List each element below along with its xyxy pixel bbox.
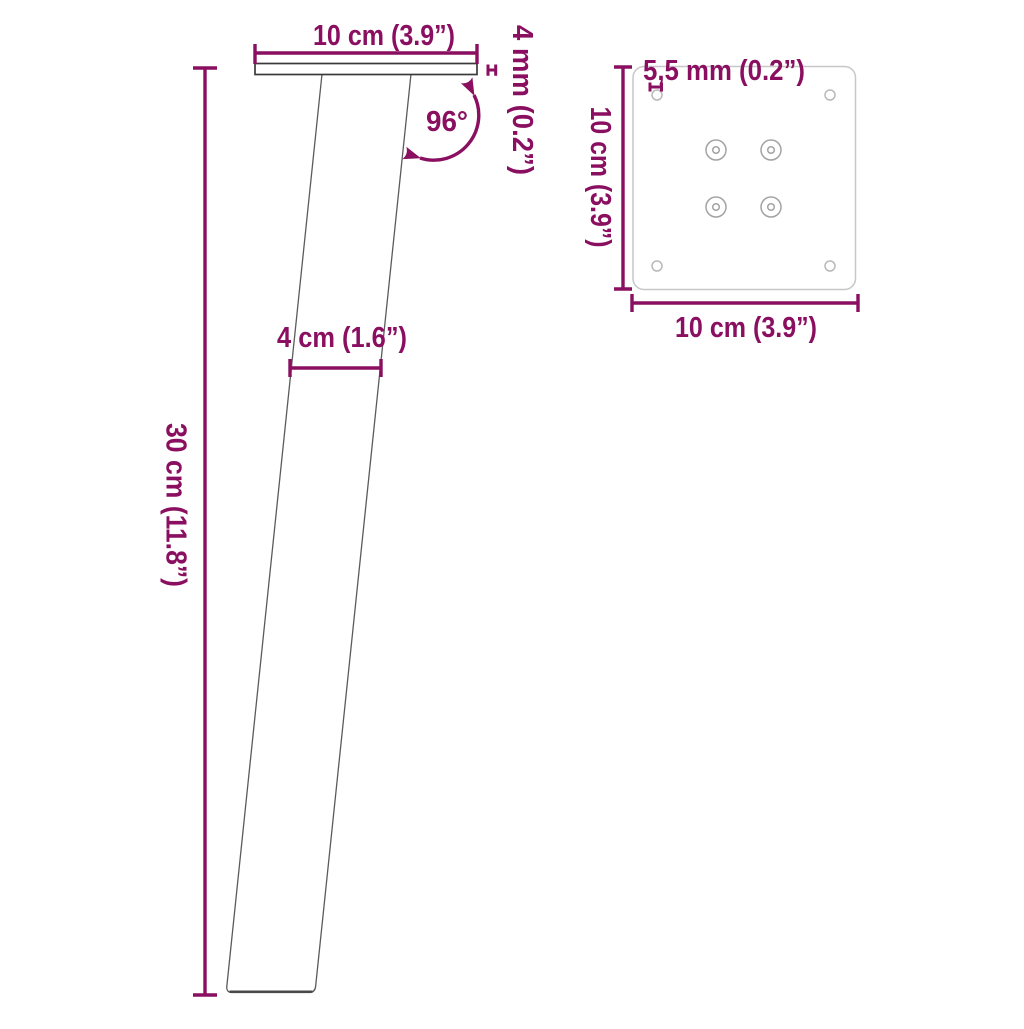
table-leg-outline [227,74,411,993]
corner-hole [825,261,835,271]
product-dimension-diagram: 10 cm (3.9”) 4 mm (0.2”) 96° 4 cm (1.6”)… [0,0,1024,1024]
mounting-plate-top-view [633,67,856,290]
top-width-label: 10 cm (3.9”) [313,20,455,52]
thickness-marker [488,65,496,76]
dimension-diagram-svg: 10 cm (3.9”) 4 mm (0.2”) 96° 4 cm (1.6”)… [0,0,1024,1024]
corner-hole [825,90,835,100]
mounting-plate-side-view [255,64,477,75]
corner-hole [652,261,662,271]
plate-depth-label: 10 cm (3.9”) [584,107,616,248]
angle-label: 96° [426,106,468,138]
dimension-line-height [193,68,217,995]
plate-width-label: 10 cm (3.9”) [675,312,817,344]
height-label: 30 cm (11.8”) [160,423,192,587]
hole-diameter-label: 5,5 mm (0.2”) [643,55,805,87]
plate-thickness-label: 4 mm (0.2”) [506,25,538,175]
leg-width-label: 4 cm (1.6”) [277,322,407,354]
dimension-line-plate-width [632,294,858,312]
top-view-figure: 5,5 mm (0.2”) 10 cm (3.9”) 10 cm (3.9”) [584,55,858,344]
side-view-figure: 10 cm (3.9”) 4 mm (0.2”) 96° 4 cm (1.6”)… [160,20,539,995]
